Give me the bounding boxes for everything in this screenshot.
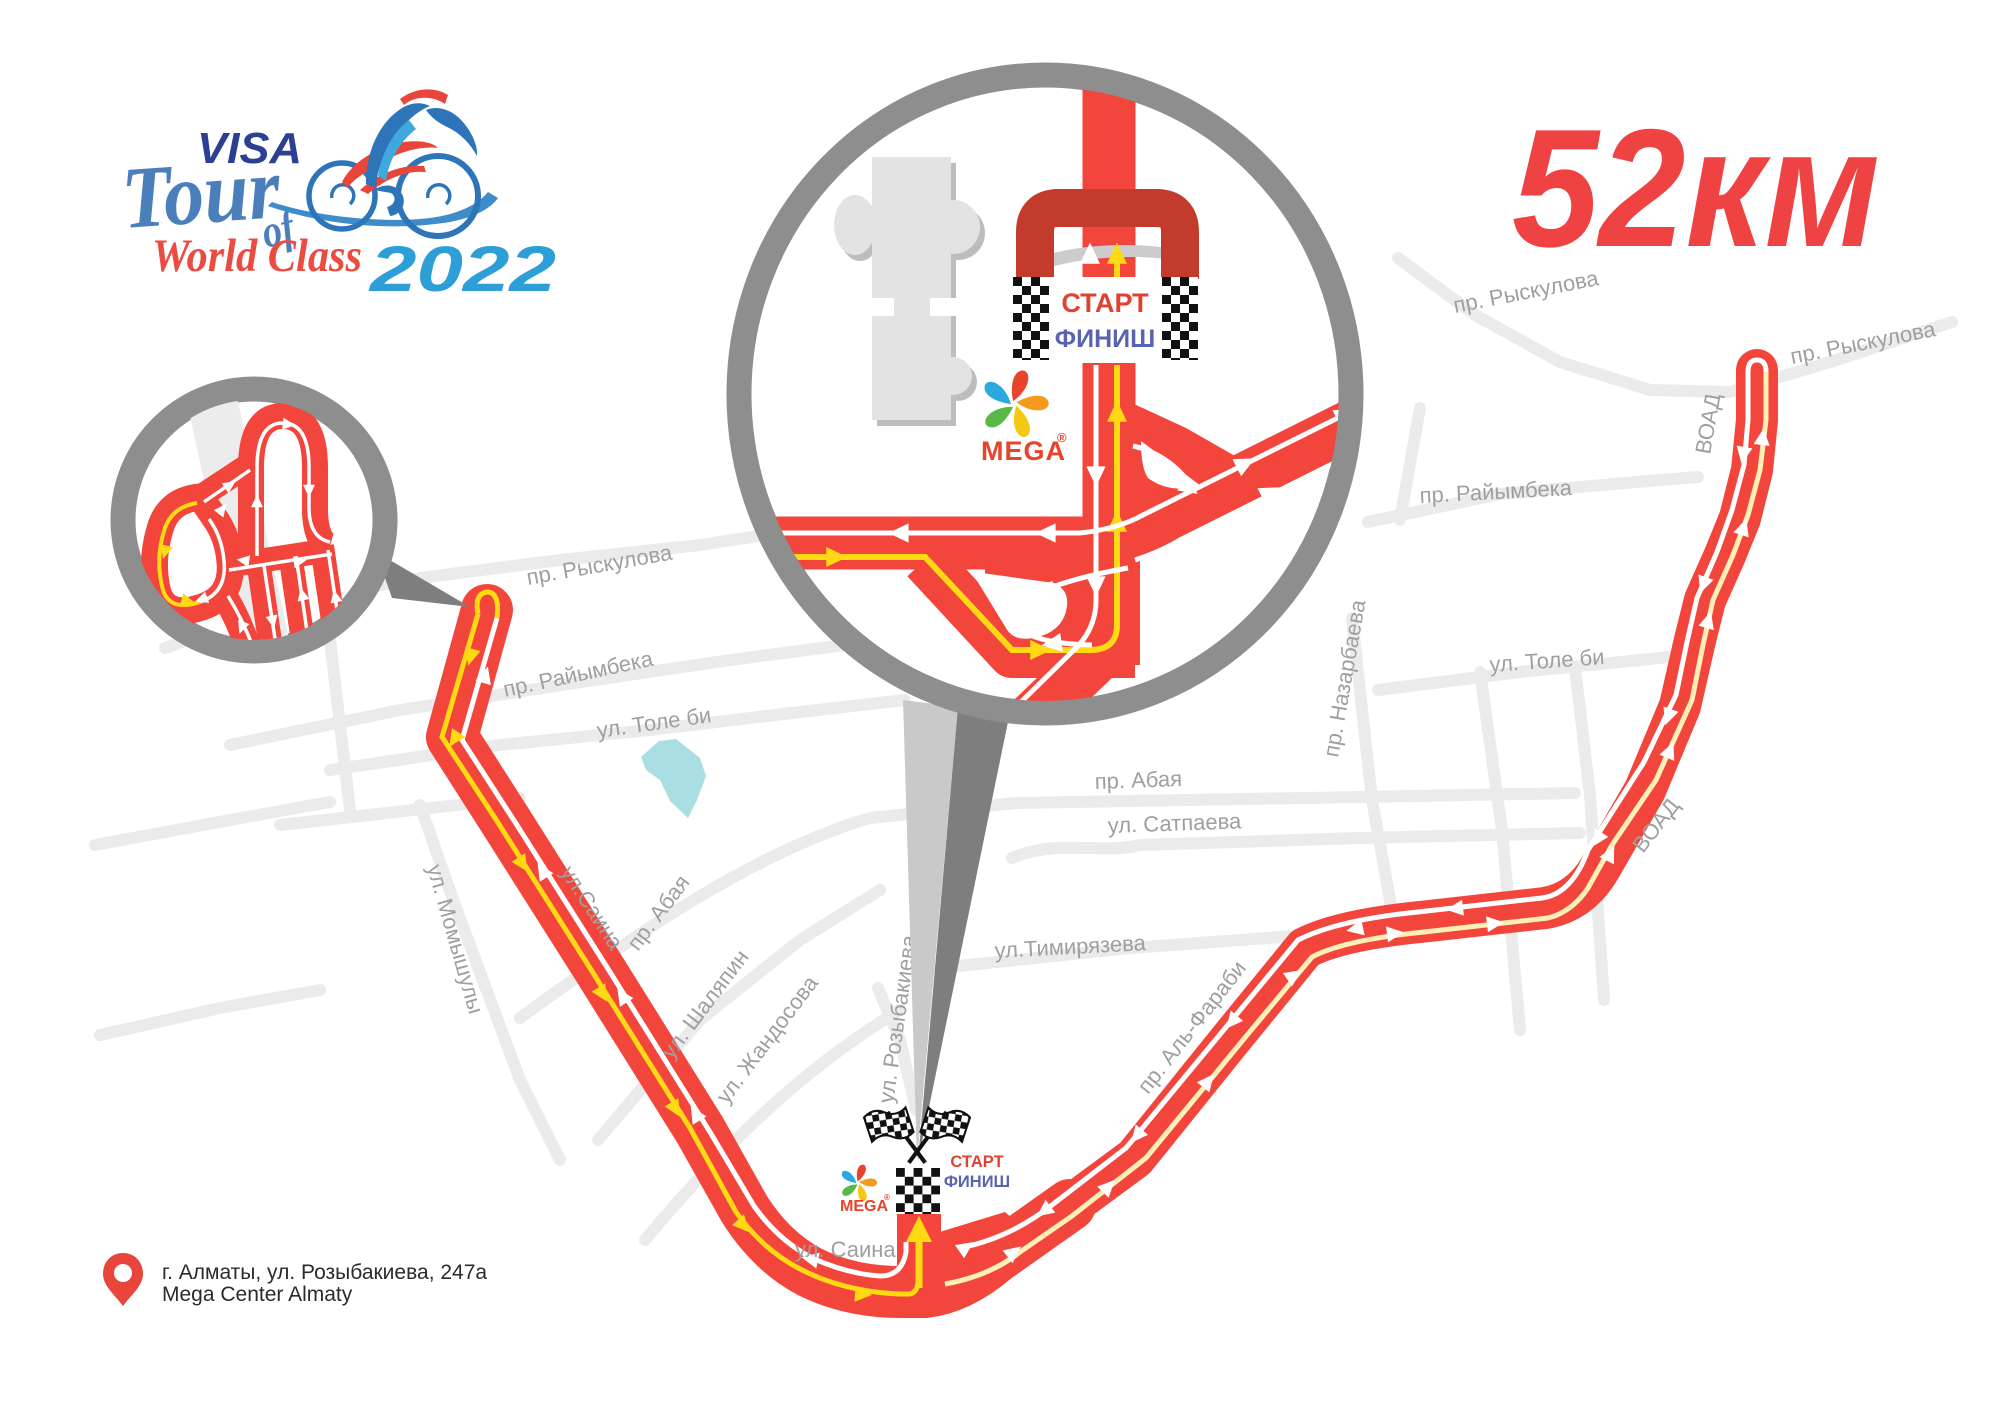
svg-text:СТАРТ: СТАРТ: [1061, 288, 1149, 318]
svg-text:ул. Саина: ул. Саина: [795, 1237, 896, 1262]
svg-text:г. Алматы, ул. Розыбакиева, 24: г. Алматы, ул. Розыбакиева, 247а: [162, 1261, 487, 1284]
svg-text:MEGA: MEGA: [981, 436, 1066, 466]
svg-text:СТАРТ: СТАРТ: [950, 1153, 1003, 1171]
svg-text:®: ®: [1057, 430, 1067, 445]
svg-text:2022: 2022: [369, 233, 556, 305]
svg-text:World Class: World Class: [152, 230, 362, 282]
svg-text:пр. Абая: пр. Абая: [1094, 766, 1182, 794]
svg-text:Mega Center Almaty: Mega Center Almaty: [162, 1283, 353, 1306]
svg-text:ФИНИШ: ФИНИШ: [1055, 325, 1155, 353]
svg-text:ФИНИШ: ФИНИШ: [944, 1173, 1010, 1191]
svg-text:ул. Сатпаева: ул. Сатпаева: [1107, 808, 1242, 838]
svg-text:®: ®: [884, 1193, 890, 1202]
svg-text:52км: 52км: [1512, 94, 1880, 282]
svg-text:MEGA: MEGA: [840, 1198, 888, 1215]
